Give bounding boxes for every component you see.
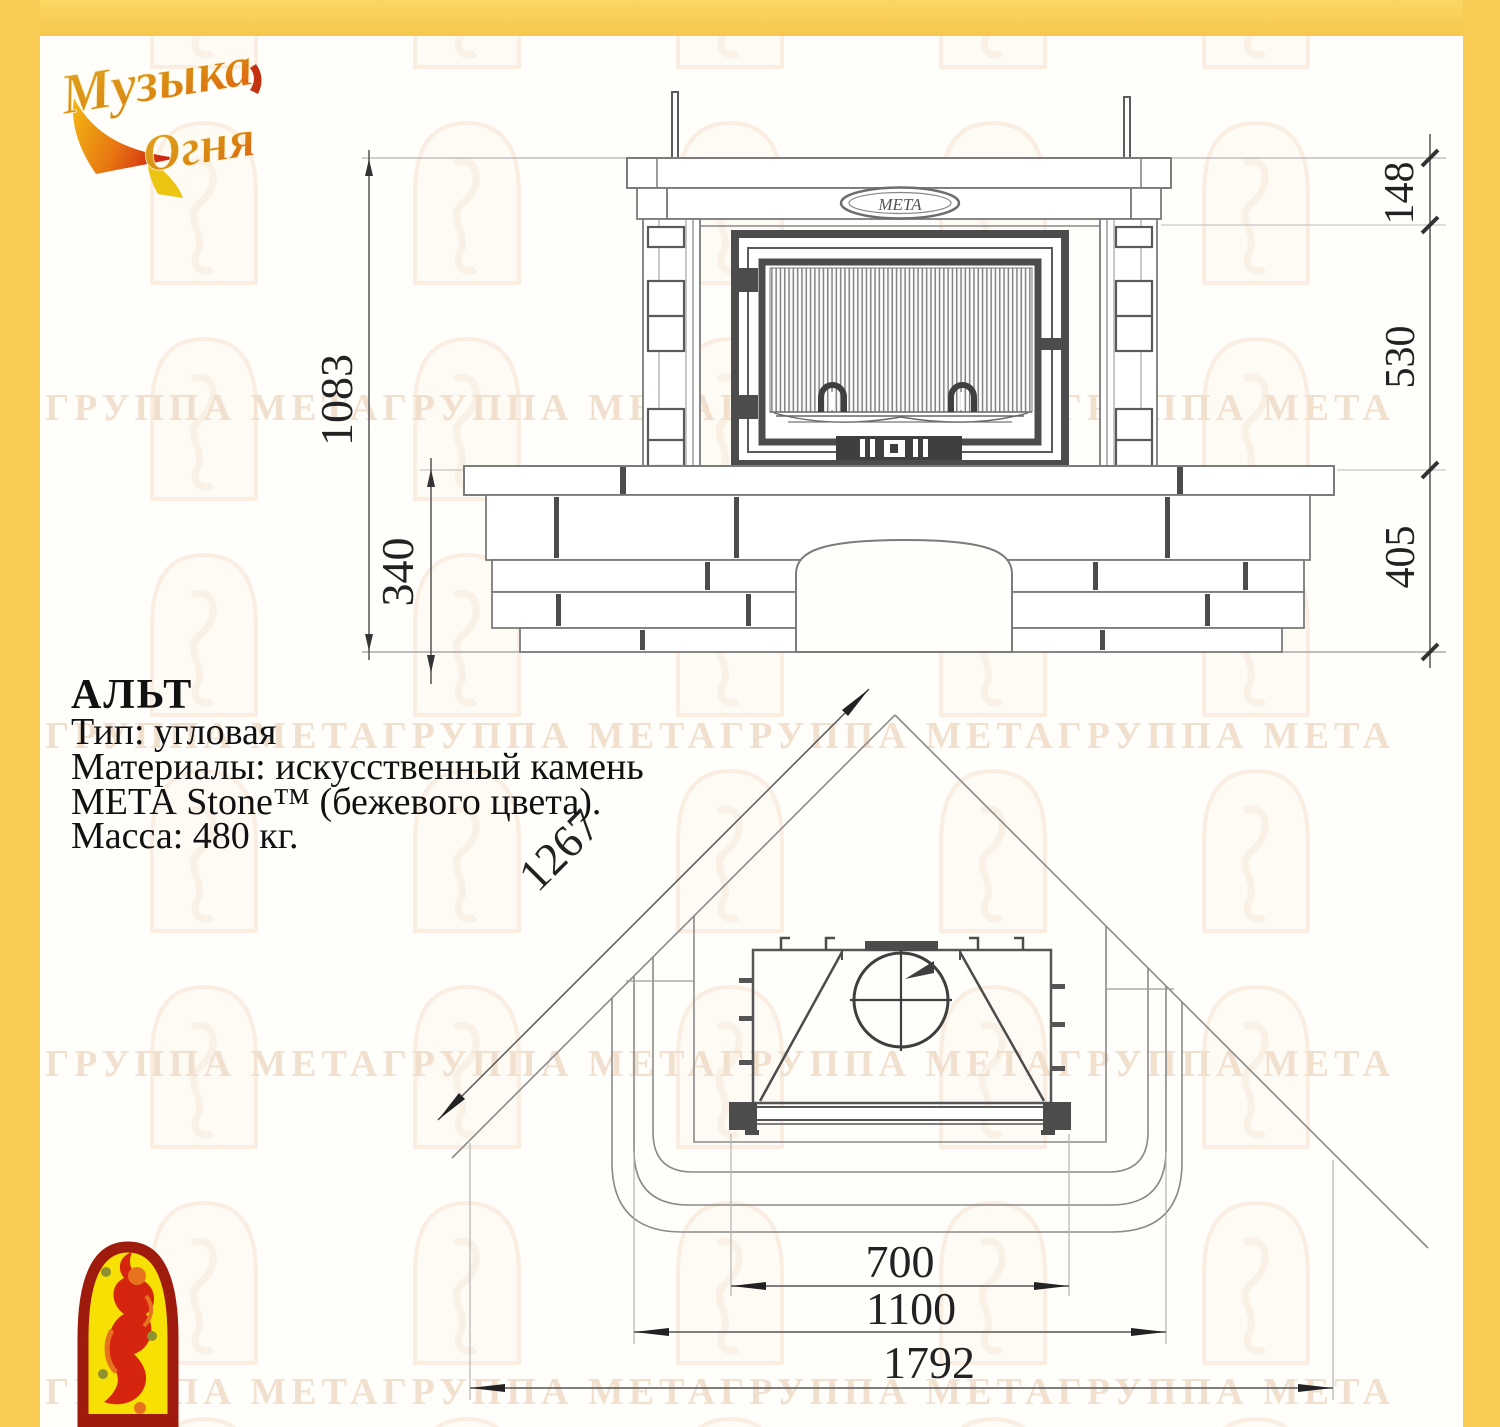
svg-text:1083: 1083: [311, 354, 362, 446]
svg-text:1792: 1792: [883, 1337, 975, 1388]
svg-text:Масса: 480 кг.: Масса: 480 кг.: [71, 815, 299, 857]
svg-text:405: 405: [1378, 526, 1424, 589]
svg-text:ГРУППА МЕТАГРУППА МЕТАГРУППА М: ГРУППА МЕТАГРУППА МЕТАГРУППА МЕТАГРУППА …: [45, 1043, 1395, 1085]
svg-text:ГРУППА МЕТАГРУППА МЕТАГРУППА М: ГРУППА МЕТАГРУППА МЕТАГРУППА МЕТАГРУППА …: [45, 387, 1395, 429]
svg-text:340: 340: [372, 538, 423, 607]
svg-text:148: 148: [1377, 162, 1423, 225]
svg-text:1100: 1100: [866, 1283, 956, 1334]
svg-text:ГРУППА МЕТАГРУППА МЕТАГРУППА М: ГРУППА МЕТАГРУППА МЕТАГРУППА МЕТАГРУППА …: [45, 1371, 1395, 1413]
svg-text:530: 530: [1378, 326, 1424, 389]
svg-text:МЕТА: МЕТА: [877, 195, 922, 214]
svg-text:700: 700: [866, 1236, 935, 1287]
